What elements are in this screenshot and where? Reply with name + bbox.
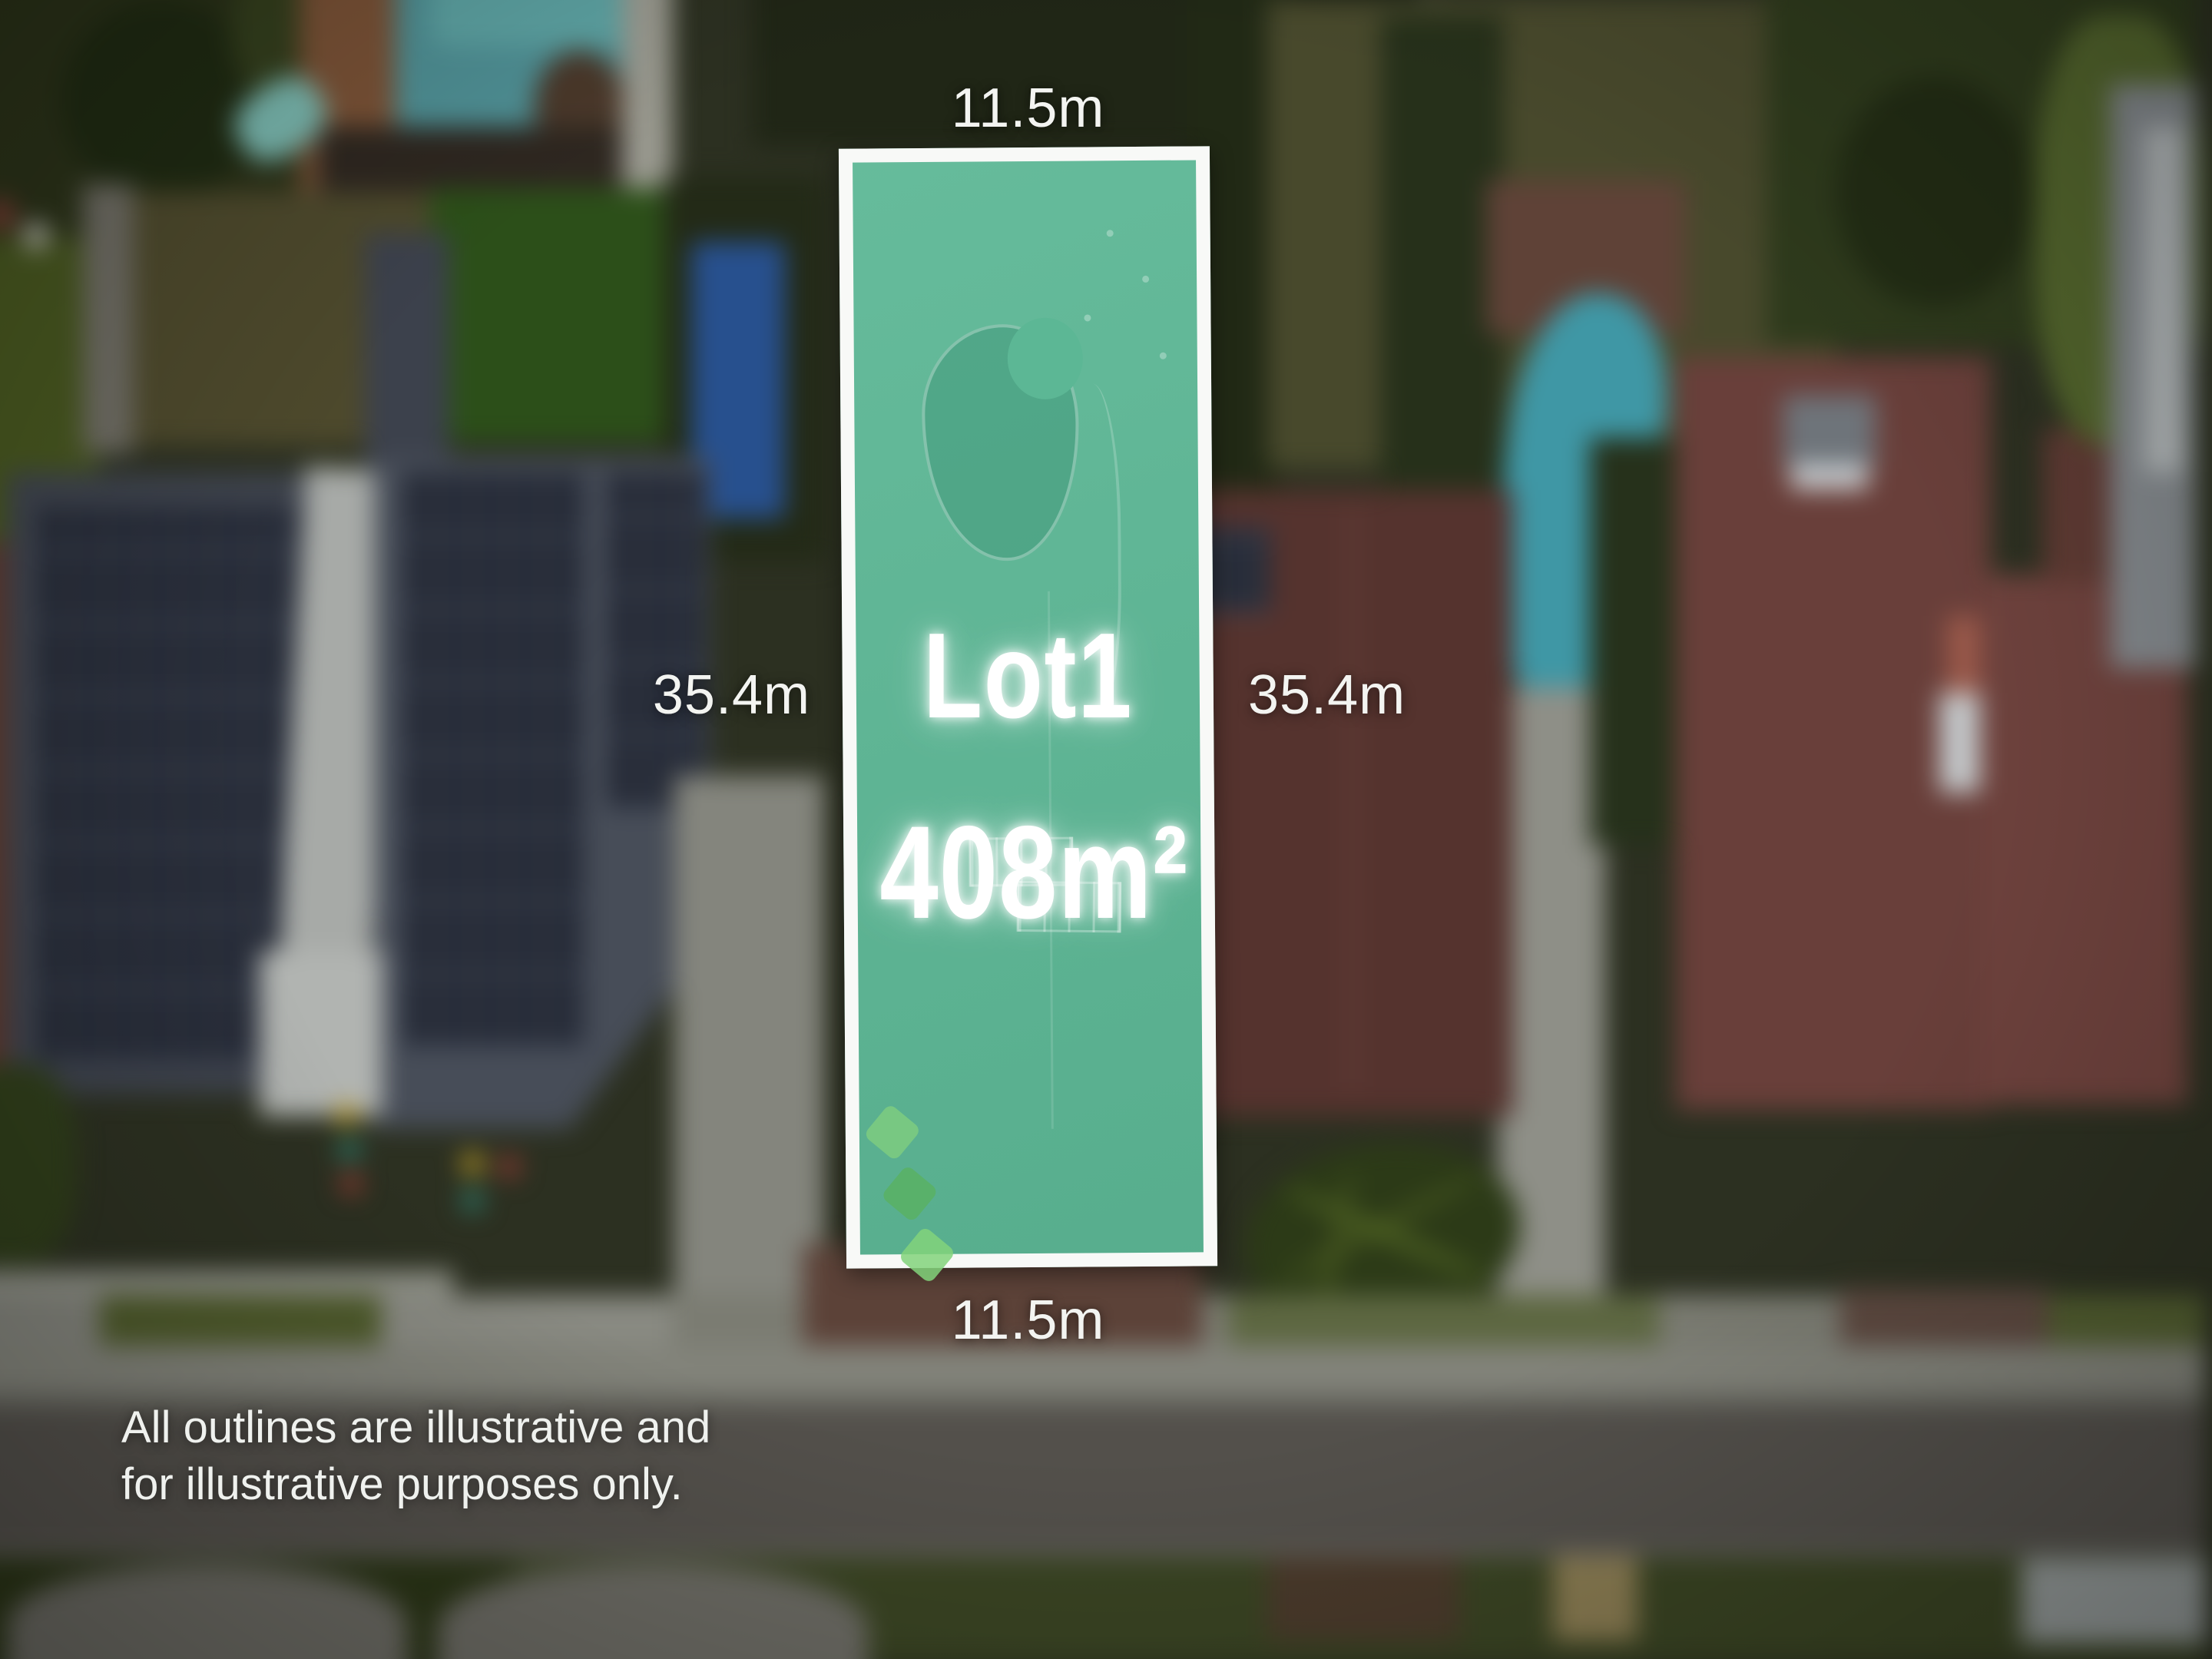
tree-highlight bbox=[1142, 276, 1149, 283]
side-dimension-left: 35.4m bbox=[503, 667, 810, 723]
tree-highlight bbox=[1107, 230, 1114, 237]
garden-path bbox=[622, 0, 673, 192]
solar-panel-array bbox=[605, 472, 704, 810]
roof-ridge bbox=[1349, 507, 1355, 1091]
wheelie-bin bbox=[499, 1157, 519, 1177]
house-roof bbox=[260, 951, 382, 1116]
solar-panel-array bbox=[401, 472, 585, 1048]
wheelie-bin bbox=[341, 1174, 361, 1194]
disclaimer-text: All outlines are illustrative and for il… bbox=[121, 1399, 710, 1513]
yard-object bbox=[23, 223, 49, 249]
disclaimer-line-1: All outlines are illustrative and bbox=[121, 1399, 710, 1456]
concrete-pad bbox=[2022, 1559, 2206, 1644]
lot-name-label: Lot1 bbox=[879, 615, 1176, 737]
palm-trunk bbox=[1553, 1556, 1637, 1641]
wheelie-bin bbox=[336, 1104, 356, 1124]
swimming-pool bbox=[430, 0, 630, 46]
wheelie-bin bbox=[339, 1140, 359, 1160]
pergola bbox=[0, 541, 8, 1071]
pool-notch bbox=[1007, 317, 1083, 399]
frontage-dimension-bottom: 11.5m bbox=[843, 1293, 1214, 1348]
garden-bed bbox=[863, 1103, 922, 1161]
tree-highlight bbox=[1160, 353, 1167, 359]
side-dimension-right: 35.4m bbox=[1248, 667, 1406, 723]
garden-path bbox=[83, 184, 134, 453]
garden-bed bbox=[880, 1164, 939, 1223]
wheelie-bin bbox=[462, 1154, 482, 1174]
tree-highlight bbox=[1084, 314, 1091, 321]
wheelie-bin bbox=[462, 1190, 482, 1210]
bush bbox=[1267, 1556, 1459, 1641]
roof-ridge bbox=[2144, 127, 2183, 472]
backyard-pool-outline bbox=[922, 324, 1080, 561]
frontage-dimension-top: 11.5m bbox=[843, 81, 1214, 136]
footpath bbox=[0, 1346, 2204, 1396]
disclaimer-line-2: for illustrative purposes only. bbox=[121, 1456, 710, 1513]
aerial-photo: 11.5m 35.4m 35.4m 11.5m Lot1 408m² All o… bbox=[0, 0, 2212, 1659]
tree-canopy bbox=[1836, 77, 2035, 307]
bush bbox=[0, 1064, 77, 1263]
skylight bbox=[1783, 396, 1876, 469]
skylight bbox=[1791, 465, 1868, 489]
lot-area-label: 408m² bbox=[879, 806, 1176, 939]
